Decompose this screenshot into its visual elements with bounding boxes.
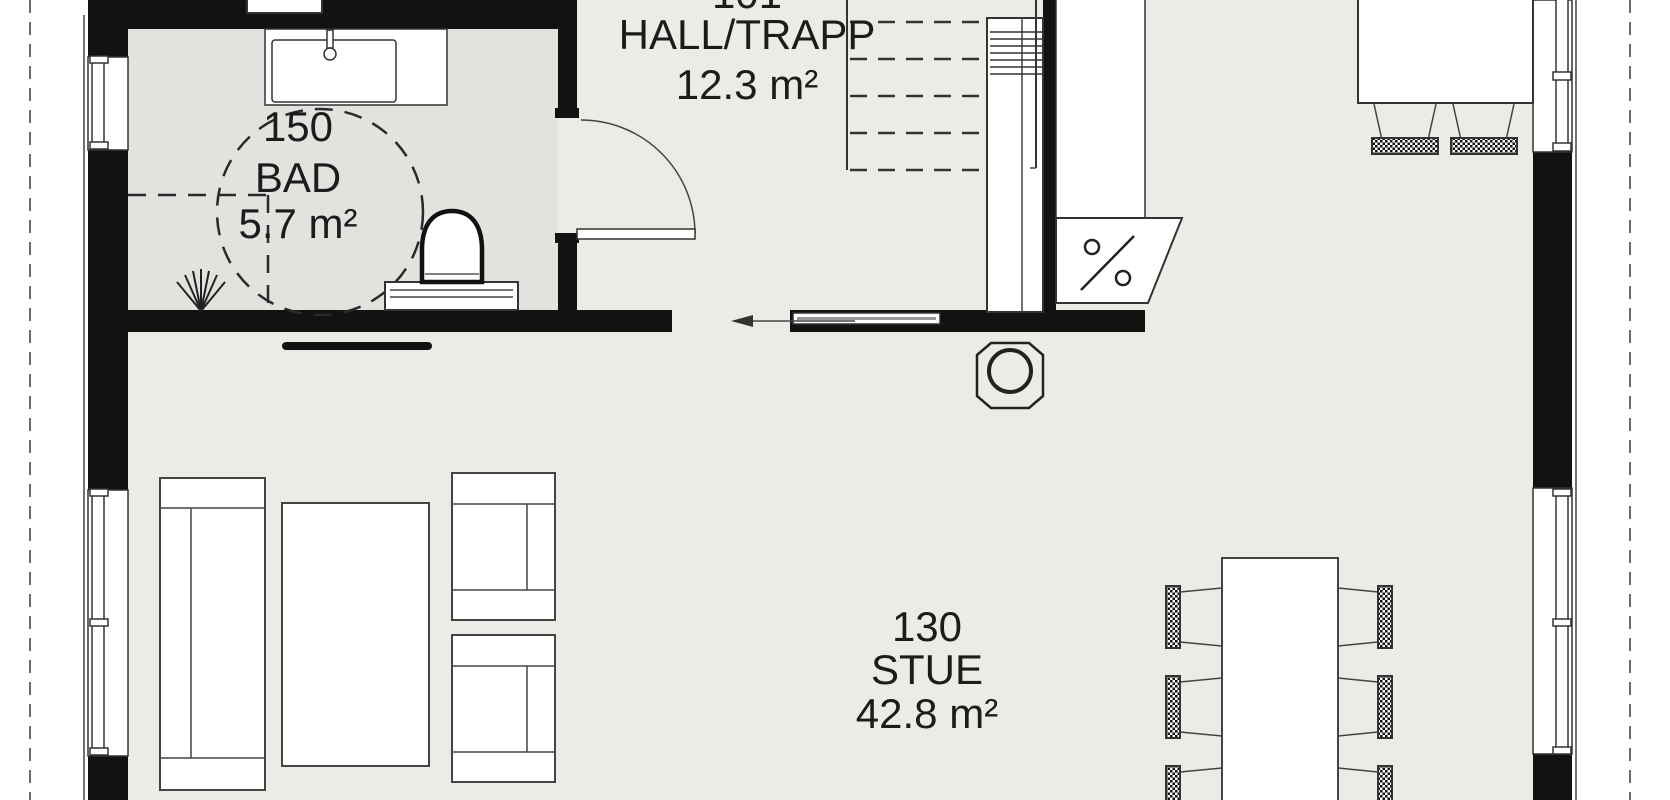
kitchen-island [1358,0,1533,103]
door-frame-tick-top [555,108,579,118]
window-right-upper [1533,0,1572,152]
wall-right-seg1 [1533,152,1572,488]
radiator [282,342,432,350]
wall-left-seg4 [88,756,128,800]
wood-stove [977,343,1043,408]
kitchen-counter [1056,0,1145,218]
armchair-2 [452,635,555,782]
coffee-table [282,503,429,766]
dining-table [1222,558,1338,800]
window-top-wall [247,0,322,13]
room-number-bad: 150 [263,103,333,150]
room-name-stue: STUE [871,646,983,693]
room-area-stue: 42.8 m² [856,690,998,737]
wall-left-seg2 [88,150,128,332]
sofa [160,478,265,790]
wall-bathroom-hall-lower [558,240,577,312]
wall-bathroom-south [88,310,672,332]
room-number-stue: 130 [892,603,962,650]
window-left-upper [88,56,128,150]
room-area-hall: 12.3 m² [676,61,818,108]
wall-top [88,0,560,29]
wall-right-seg2 [1533,754,1572,800]
floor-plan-drawing: 150 BAD 5.7 m² 101 HALL/TRAPP 12.3 m² 13… [0,0,1670,800]
wall-left-seg1 [88,0,128,57]
vanity-sink [265,29,447,105]
door-frame-tick-bottom [555,233,579,243]
window-left-lower [88,489,128,756]
room-area-bad: 5.7 m² [238,200,357,247]
wall-left-seg3 [88,332,128,490]
stair-flight [987,18,1043,312]
wall-bathroom-hall-upper [558,0,577,115]
room-name-hall: HALL/TRAPP [619,11,876,58]
window-right-lower [1533,488,1572,754]
armchair-1 [452,473,555,620]
floor-plan-page: 150 BAD 5.7 m² 101 HALL/TRAPP 12.3 m² 13… [0,0,1670,800]
stair-treads-solid [990,32,1042,74]
wall-stair-right [1043,0,1056,310]
sliding-door-panel [797,317,936,320]
room-name-bad: BAD [255,154,341,201]
